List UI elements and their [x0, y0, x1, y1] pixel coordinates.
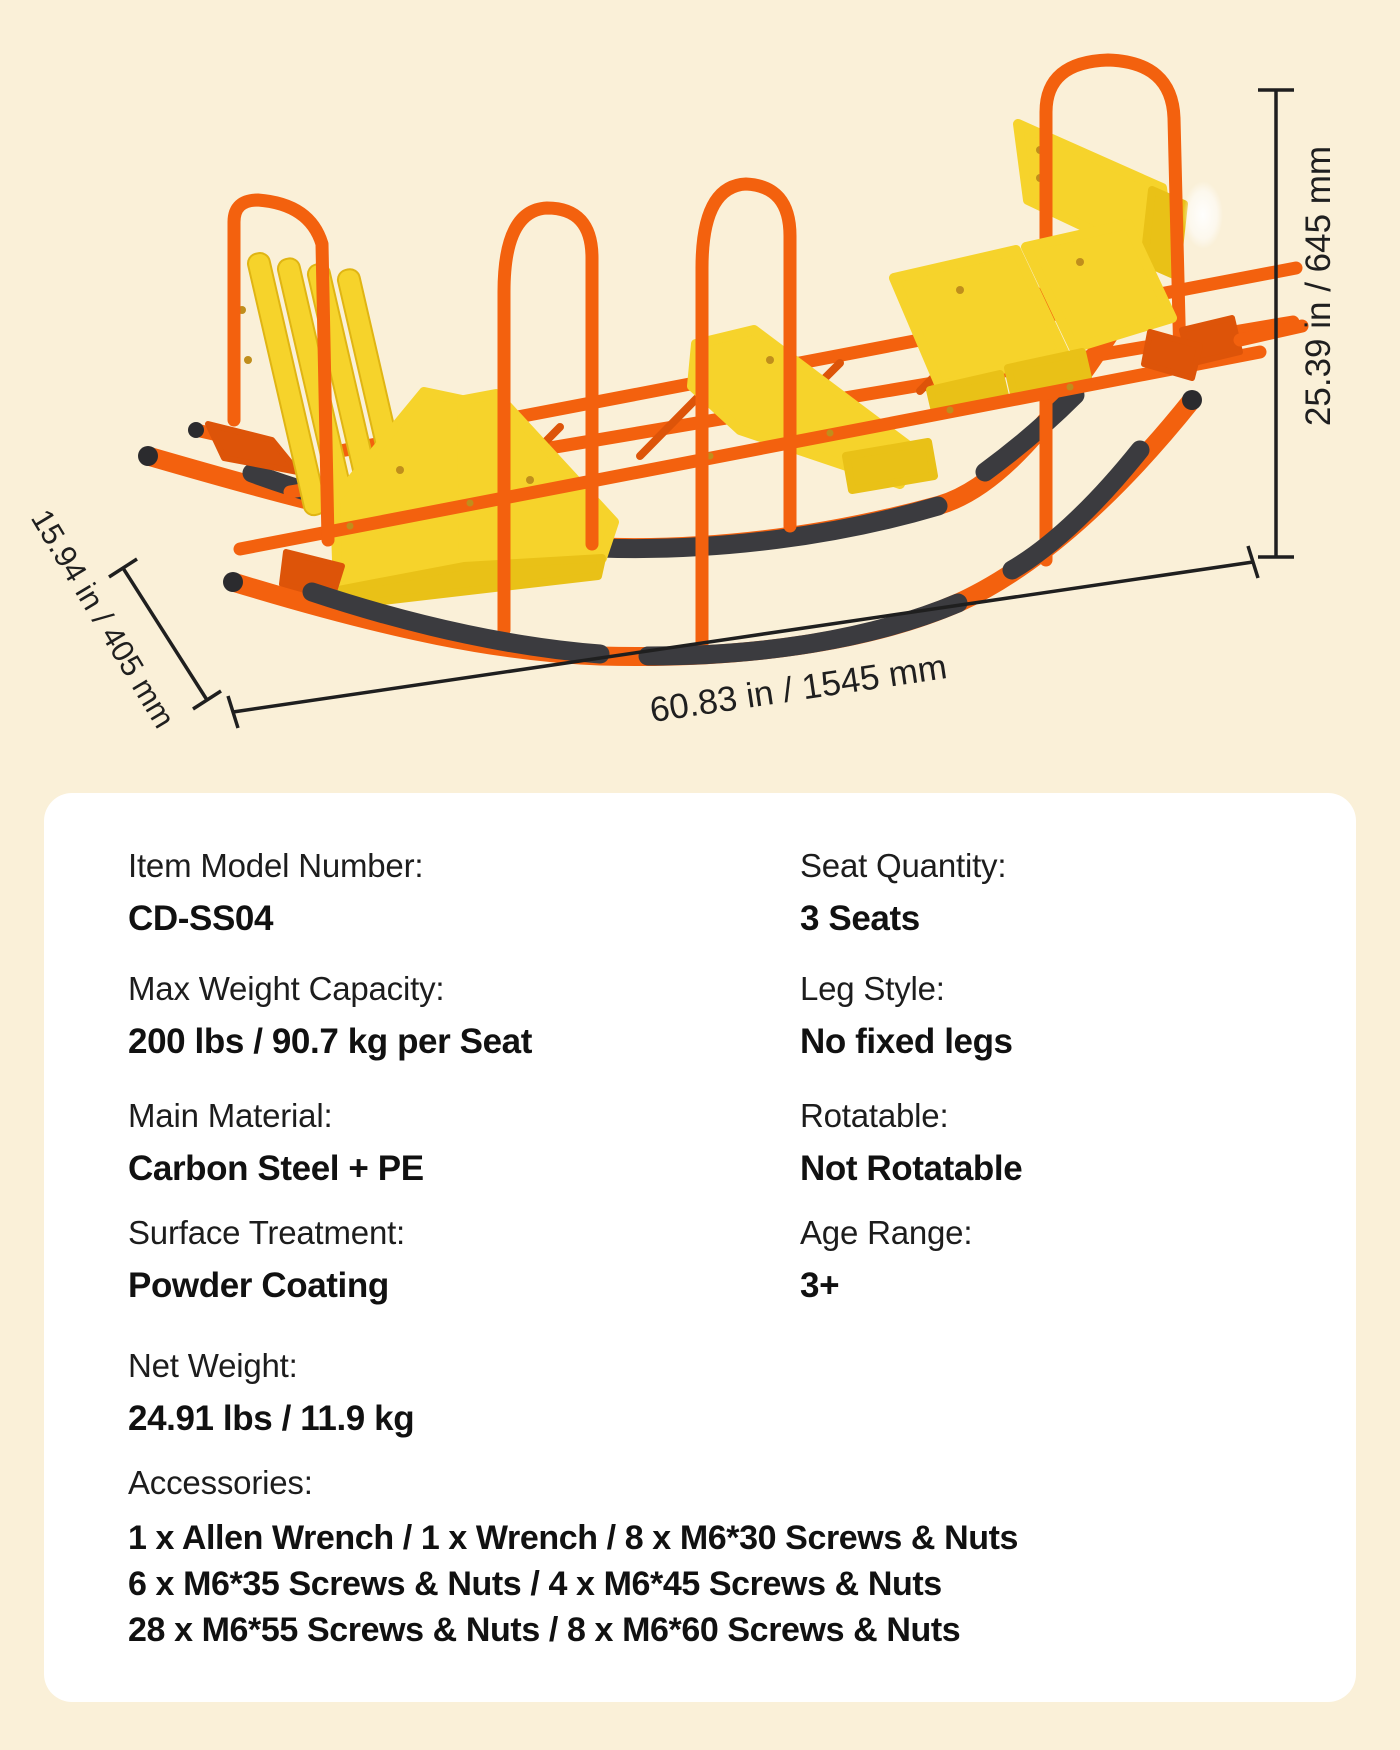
accessory-line: 1 x Allen Wrench / 1 x Wrench / 8 x M6*3…	[128, 1515, 1018, 1561]
spec-surface-treatment: Surface Treatment: Powder Coating	[128, 1212, 405, 1308]
spec-label: Accessories:	[128, 1462, 1018, 1504]
screw-dot	[766, 356, 774, 364]
rocker-end-cap	[223, 572, 243, 592]
screw-dot	[244, 356, 252, 364]
pivot-bracket	[208, 424, 298, 472]
spec-value: CD-SS04	[128, 897, 423, 941]
spec-net-weight: Net Weight: 24.91 lbs / 11.9 kg	[128, 1345, 414, 1441]
screw-dot	[827, 430, 834, 437]
handle-end-cap	[188, 422, 204, 438]
spec-label: Seat Quantity:	[800, 845, 1006, 887]
spec-seat-quantity: Seat Quantity: 3 Seats	[800, 845, 1006, 941]
spec-value: 3 Seats	[800, 897, 1006, 941]
spec-value: No fixed legs	[800, 1020, 1013, 1064]
accessory-line: 28 x M6*55 Screws & Nuts / 8 x M6*60 Scr…	[128, 1607, 1018, 1653]
screw-dot	[347, 523, 354, 530]
screw-dot	[526, 476, 534, 484]
spec-label: Age Range:	[800, 1212, 972, 1254]
rocker-end-cap	[138, 446, 158, 466]
spec-label: Surface Treatment:	[128, 1212, 405, 1254]
spec-label: Net Weight:	[128, 1345, 414, 1387]
spec-card: Item Model Number: CD-SS04 Seat Quantity…	[44, 793, 1356, 1702]
product-spec-sheet: 25.39 in / 645 mm 60.83 in / 1545 mm 15.…	[0, 0, 1400, 1750]
spec-value: Carbon Steel + PE	[128, 1147, 424, 1191]
spec-age-range: Age Range: 3+	[800, 1212, 972, 1308]
spec-label: Item Model Number:	[128, 845, 423, 887]
spec-value: 24.91 lbs / 11.9 kg	[128, 1397, 414, 1441]
spec-label: Main Material:	[128, 1095, 424, 1137]
spec-value: Not Rotatable	[800, 1147, 1022, 1191]
dim-height-label: 25.39 in / 645 mm	[1299, 146, 1338, 426]
screw-dot	[1067, 384, 1074, 391]
spec-leg-style: Leg Style: No fixed legs	[800, 968, 1013, 1064]
screw-dot	[947, 407, 954, 414]
screw-dot	[467, 500, 474, 507]
spec-main-material: Main Material: Carbon Steel + PE	[128, 1095, 424, 1191]
screw-dot	[396, 466, 404, 474]
spec-label: Leg Style:	[800, 968, 1013, 1010]
dimension-width: 15.94 in / 405 mm	[24, 503, 221, 734]
right-bench	[894, 224, 1172, 416]
handle-right-end	[1144, 318, 1302, 378]
spec-rotatable: Rotatable: Not Rotatable	[800, 1095, 1022, 1191]
dim-width-tick-top	[109, 559, 137, 577]
spec-item-model-number: Item Model Number: CD-SS04	[128, 845, 423, 941]
rocker-end-cap	[1182, 390, 1202, 410]
seesaw-illustration: 25.39 in / 645 mm 60.83 in / 1545 mm 15.…	[0, 0, 1400, 768]
dim-width-label: 15.94 in / 405 mm	[24, 503, 182, 734]
accessories-list: 1 x Allen Wrench / 1 x Wrench / 8 x M6*3…	[128, 1515, 1018, 1653]
spec-value: Powder Coating	[128, 1264, 405, 1308]
spec-value: 3+	[800, 1264, 972, 1308]
spec-accessories: Accessories: 1 x Allen Wrench / 1 x Wren…	[128, 1462, 1018, 1653]
screw-dot	[956, 286, 964, 294]
glare-highlight	[1183, 181, 1223, 249]
spec-label: Rotatable:	[800, 1095, 1022, 1137]
spec-label: Max Weight Capacity:	[128, 968, 532, 1010]
dim-width-tick-bottom	[193, 691, 221, 709]
accessory-line: 6 x M6*35 Screws & Nuts / 4 x M6*45 Scre…	[128, 1561, 1018, 1607]
spec-value: 200 lbs / 90.7 kg per Seat	[128, 1020, 532, 1064]
screw-dot	[1076, 258, 1084, 266]
spec-max-weight-capacity: Max Weight Capacity: 200 lbs / 90.7 kg p…	[128, 968, 532, 1064]
